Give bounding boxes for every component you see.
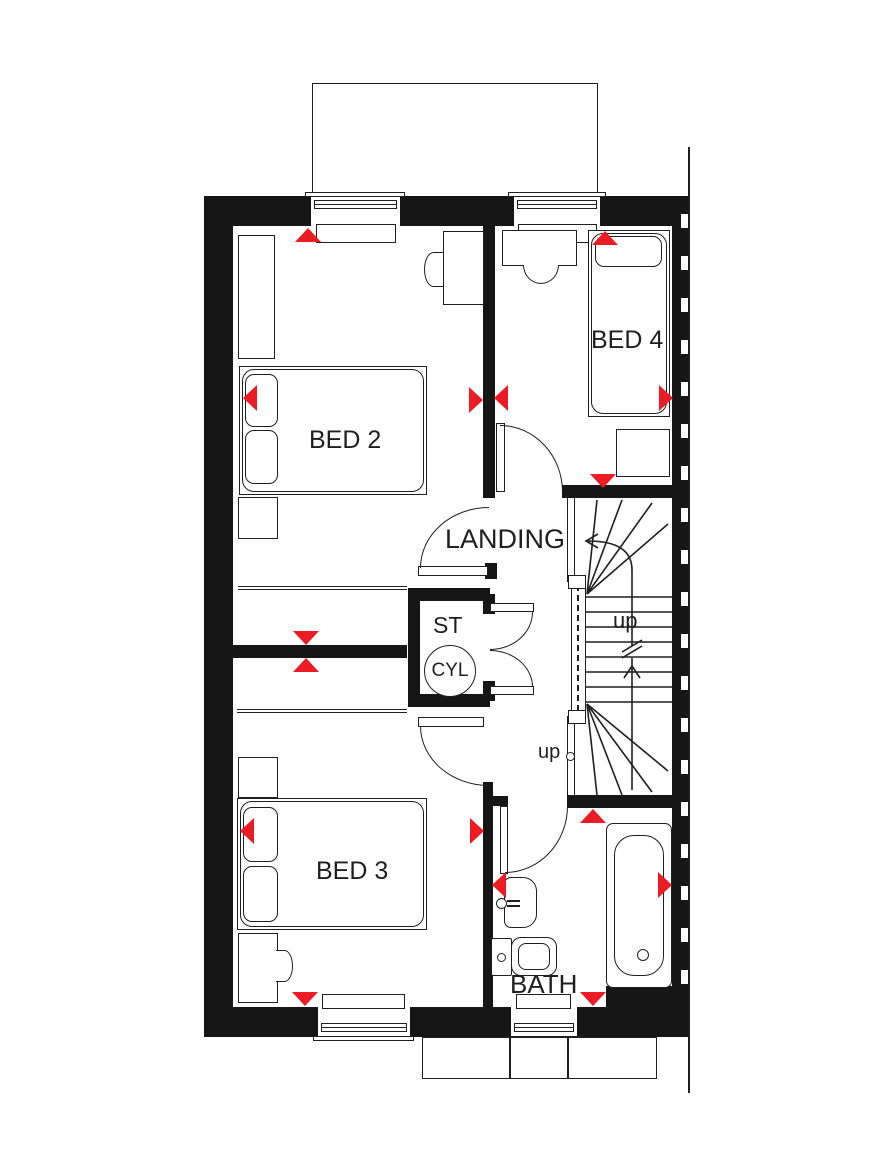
window-glazing bbox=[314, 200, 397, 209]
walkline-arrow-icon bbox=[624, 666, 640, 678]
vent-arrow-icon bbox=[243, 385, 257, 411]
lower-floor-outline bbox=[510, 1037, 568, 1079]
vent-arrow-icon bbox=[592, 231, 618, 245]
door-leaf-st-top bbox=[490, 603, 534, 612]
window-reveal bbox=[322, 994, 405, 1009]
basin-tap-spout bbox=[507, 900, 520, 902]
dormer-outline bbox=[312, 83, 598, 197]
stairs-up-label: up bbox=[613, 608, 637, 634]
vent-arrow-icon bbox=[590, 474, 616, 488]
wall-mid-structural bbox=[233, 645, 407, 658]
party-wall-line bbox=[688, 147, 690, 1093]
line-bed2-south bbox=[238, 586, 407, 590]
window-glazing bbox=[514, 1023, 574, 1032]
window-sill bbox=[313, 1036, 414, 1041]
bath-boxing bbox=[606, 986, 672, 1008]
vent-arrow-icon bbox=[293, 658, 319, 672]
door-swing-arc-st-bottom bbox=[490, 650, 533, 687]
window-reveal bbox=[316, 224, 396, 243]
vent-arrow-icon bbox=[292, 992, 318, 1006]
bed4-bed bbox=[588, 230, 670, 417]
bathtub bbox=[606, 823, 672, 988]
wall-st-left bbox=[408, 588, 420, 707]
vent-arrow-icon bbox=[470, 818, 484, 844]
stair-string-top bbox=[567, 498, 575, 582]
window-glazing bbox=[321, 1023, 407, 1032]
room-label-bed3: BED 3 bbox=[316, 857, 388, 886]
vent-arrow-icon bbox=[494, 385, 508, 411]
exterior-wall-bottom bbox=[204, 1007, 690, 1037]
vent-arrow-icon bbox=[492, 872, 506, 898]
stair-newel-bottom bbox=[568, 710, 586, 724]
door-swing-arc-st-top bbox=[490, 612, 533, 650]
walkline-start-dot bbox=[566, 752, 575, 761]
door-leaf-st-bottom bbox=[490, 686, 534, 695]
bathtub-drain bbox=[637, 949, 649, 961]
bed3-cabinet-top bbox=[238, 757, 278, 798]
exterior-wall-left bbox=[204, 196, 233, 1037]
bed2-chair bbox=[424, 252, 443, 287]
vent-arrow-icon bbox=[580, 809, 606, 823]
room-label-st: ST bbox=[433, 612, 462, 639]
vent-arrow-icon bbox=[658, 872, 672, 898]
bed4-bedside-table bbox=[616, 429, 670, 477]
basin-tap bbox=[496, 898, 507, 909]
stair-balustrade bbox=[571, 582, 586, 716]
bed4-desk bbox=[502, 230, 577, 266]
room-label-landing: LANDING bbox=[445, 524, 565, 555]
vent-arrow-icon bbox=[469, 387, 483, 413]
bed4-chair bbox=[523, 265, 559, 284]
cylinder-label: CYL bbox=[424, 645, 476, 697]
room-label-bed4: BED 4 bbox=[591, 326, 663, 355]
pillow bbox=[245, 430, 278, 484]
pillow bbox=[243, 866, 278, 922]
exterior-wall-top bbox=[204, 196, 690, 226]
window-sill bbox=[305, 192, 405, 197]
bed2-wardrobe bbox=[238, 235, 275, 359]
room-label-bath: BATH bbox=[510, 969, 577, 1000]
line-bed3-north bbox=[237, 709, 407, 713]
toilet-flush bbox=[497, 953, 506, 962]
room-label-bed2: BED 2 bbox=[309, 426, 381, 455]
bed3-desk bbox=[238, 933, 278, 1003]
bed2-bedside-table bbox=[238, 497, 278, 539]
landing-up-label: up bbox=[538, 741, 560, 764]
vent-arrow-icon bbox=[295, 228, 321, 242]
vent-arrow-icon bbox=[293, 631, 319, 645]
door-swing-arc-bath bbox=[505, 806, 568, 873]
basin bbox=[504, 877, 537, 928]
wall-bed2-bed4 bbox=[483, 226, 495, 498]
basin-tap-spout bbox=[507, 905, 520, 907]
lower-floor-outline bbox=[422, 1037, 510, 1079]
lower-floor-outline bbox=[568, 1037, 657, 1079]
wall-stairs-bottom bbox=[567, 795, 672, 808]
vent-arrow-icon bbox=[240, 818, 254, 844]
door-swing-arc-bed4 bbox=[500, 425, 563, 492]
window-sill bbox=[508, 192, 606, 197]
bed3-chair bbox=[276, 950, 293, 982]
door-swing-arc-bed3 bbox=[420, 726, 489, 786]
window-glazing bbox=[517, 200, 597, 209]
wall-bath-door-stub bbox=[484, 796, 508, 806]
vent-arrow-icon bbox=[659, 385, 673, 411]
wall-bed4-landing bbox=[562, 485, 672, 498]
bed2-desk bbox=[443, 231, 484, 305]
walkline-arrow-icon bbox=[586, 534, 598, 548]
stair-newel-top bbox=[568, 575, 586, 589]
vent-arrow-icon bbox=[580, 992, 606, 1006]
floor-plan: BED 2 BED 4 LANDING ST CYL BED 3 BATH up… bbox=[0, 0, 882, 1170]
wall-st-top bbox=[408, 588, 490, 601]
